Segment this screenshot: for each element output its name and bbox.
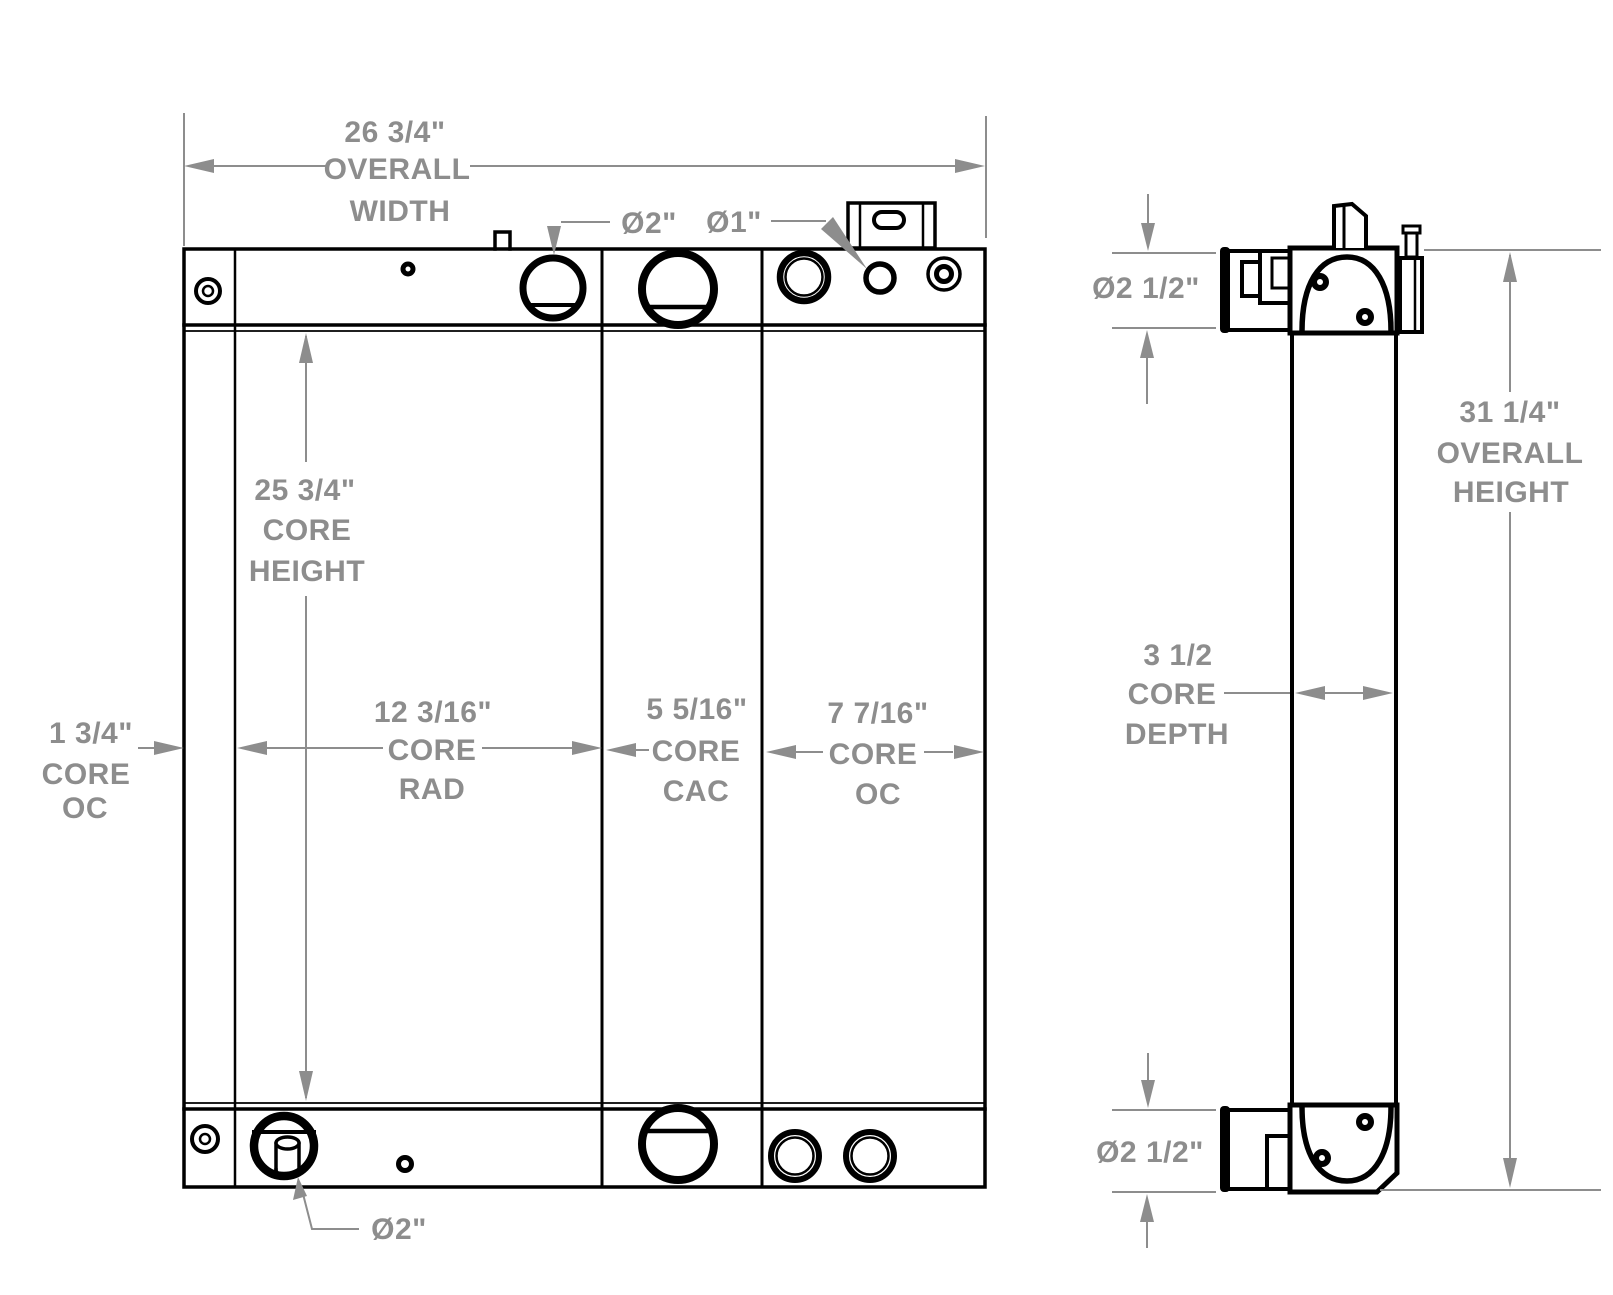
dim-label: HEIGHT xyxy=(1453,476,1569,509)
dim-label: CORE xyxy=(263,514,352,547)
dim-label: 1 3/4" xyxy=(49,717,133,750)
dim-core-depth: 3 1/2 CORE DEPTH xyxy=(1125,639,1393,751)
arrow-left-icon xyxy=(184,159,214,173)
dim-label: Ø2 1/2" xyxy=(1092,272,1200,305)
front-bottom-tank-ports xyxy=(192,1108,894,1180)
arrow-up-icon xyxy=(1503,252,1517,282)
dim-core-rad: 12 3/16" CORE RAD xyxy=(237,696,602,806)
pipe-cap xyxy=(1220,1106,1230,1192)
top-tab xyxy=(495,232,510,249)
dim-label: CORE xyxy=(42,758,131,791)
dim-label: OVERALL xyxy=(1437,437,1584,470)
arrow-left-icon xyxy=(237,741,267,755)
arrow-down-icon xyxy=(1503,1158,1517,1188)
arrow-right-icon xyxy=(955,159,985,173)
dim-side-top-port: Ø2 1/2" xyxy=(1092,194,1216,404)
cac-bottom-port xyxy=(642,1108,714,1180)
drawing-page: 26 3/4" OVERALL WIDTH Ø2" Ø1" 25 3/4" CO… xyxy=(0,0,1613,1295)
dim-core-height: 25 3/4" CORE HEIGHT xyxy=(249,333,365,1101)
small-stub xyxy=(1406,231,1417,257)
dim-label: 3 1/2 xyxy=(1143,639,1212,672)
dim-label: Ø2" xyxy=(371,1213,427,1246)
side-top-tank xyxy=(1220,204,1422,333)
top-bracket xyxy=(848,203,935,248)
dim-label: OC xyxy=(855,778,901,811)
dim-label: 31 1/4" xyxy=(1459,396,1560,429)
arrow-up-icon xyxy=(299,333,313,363)
side-view: Ø2 1/2" 3 1/2 CORE DEPTH 31 1/4" OVERALL… xyxy=(1092,194,1601,1248)
arrow-down-icon xyxy=(1141,1080,1155,1108)
arrow-down-icon xyxy=(1141,223,1155,251)
dim-core-oc-right: 7 7/16" CORE OC xyxy=(766,697,984,811)
dim-label: CAC xyxy=(663,775,730,808)
bolt-hole xyxy=(1316,1152,1328,1164)
dim-label: 12 3/16" xyxy=(374,696,492,729)
dim-label: DEPTH xyxy=(1125,718,1229,751)
dim-label: 25 3/4" xyxy=(254,474,355,507)
front-view: 26 3/4" OVERALL WIDTH Ø2" Ø1" 25 3/4" CO… xyxy=(42,113,986,1246)
small-hole xyxy=(399,1158,412,1171)
side-flange xyxy=(1400,258,1422,332)
arrow-left-icon xyxy=(606,743,636,757)
pipe-cap xyxy=(1220,247,1230,333)
side-bottom-tank xyxy=(1220,1105,1397,1192)
arrow-up-icon xyxy=(1140,1194,1154,1222)
dim-label: Ø2" xyxy=(621,207,677,240)
arrow-left-icon xyxy=(766,745,796,759)
dim-side-bottom-port: Ø2 1/2" xyxy=(1096,1053,1216,1248)
dim-label: OVERALL xyxy=(324,153,471,186)
dim-label: CORE xyxy=(652,735,741,768)
arrow-right-icon xyxy=(154,741,184,755)
dim-core-oc-left: 1 3/4" CORE OC xyxy=(42,717,184,825)
oc-top-flange xyxy=(780,253,828,301)
dim-label: 7 7/16" xyxy=(827,697,928,730)
mount-tab xyxy=(1334,204,1366,248)
arrow-right-icon xyxy=(572,741,602,755)
dim-core-cac: 5 5/16" CORE CAC xyxy=(606,693,748,808)
arrow-right-icon xyxy=(1363,686,1393,700)
cac-top-port xyxy=(642,253,714,325)
arrow-down-icon xyxy=(299,1071,313,1101)
dim-label: Ø1" xyxy=(706,206,762,239)
dim-label: 5 5/16" xyxy=(646,693,747,726)
bolt-hole xyxy=(1359,311,1371,323)
arrow-right-icon xyxy=(954,745,984,759)
dim-overall-height: 31 1/4" OVERALL HEIGHT xyxy=(1380,250,1601,1190)
arrow-up-icon xyxy=(1140,330,1154,358)
dim-label: RAD xyxy=(399,773,466,806)
oc-bottom-port xyxy=(771,1132,819,1180)
dim-label: CORE xyxy=(1128,678,1217,711)
bolt-hole xyxy=(1359,1116,1371,1128)
dim-label: OC xyxy=(62,792,108,825)
dim-label: Ø2 1/2" xyxy=(1096,1136,1204,1169)
dim-label: CORE xyxy=(388,734,477,767)
front-top-tank-ports xyxy=(196,253,960,325)
rad-top-port xyxy=(523,258,583,318)
dim-label: HEIGHT xyxy=(249,555,365,588)
dim-label: WIDTH xyxy=(350,195,451,228)
arrow-left-icon xyxy=(1295,686,1325,700)
technical-drawing: 26 3/4" OVERALL WIDTH Ø2" Ø1" 25 3/4" CO… xyxy=(0,0,1613,1295)
bolt-hole xyxy=(1314,276,1326,288)
dim-label: CORE xyxy=(829,738,918,771)
small-hole xyxy=(403,264,413,274)
oc-bottom-port xyxy=(846,1132,894,1180)
dim-label: 26 3/4" xyxy=(344,116,445,149)
oc-top-port xyxy=(866,264,894,292)
